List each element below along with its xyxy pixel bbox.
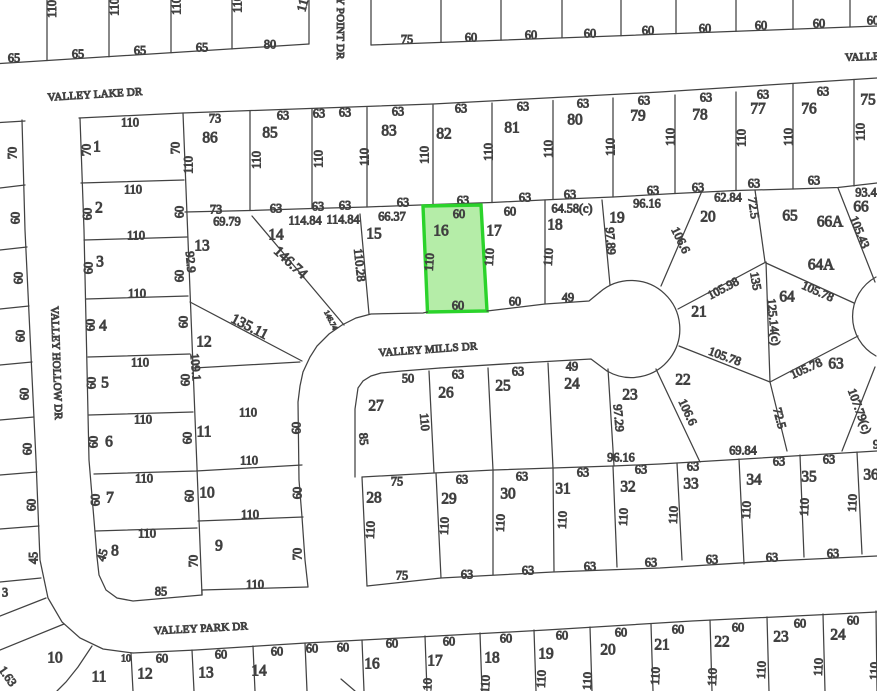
svg-text:60: 60 <box>176 316 190 328</box>
svg-text:63: 63 <box>339 198 351 212</box>
svg-text:5: 5 <box>101 374 109 391</box>
svg-text:97.89: 97.89 <box>603 227 619 255</box>
svg-text:75: 75 <box>391 474 403 488</box>
svg-text:73: 73 <box>209 111 221 125</box>
svg-text:110: 110 <box>482 248 497 267</box>
svg-text:60: 60 <box>867 13 877 27</box>
svg-text:63: 63 <box>455 101 467 115</box>
svg-text:110: 110 <box>705 668 720 687</box>
svg-text:60: 60 <box>500 631 512 645</box>
svg-text:60: 60 <box>182 490 196 502</box>
svg-text:110: 110 <box>128 286 146 300</box>
svg-text:114.84: 114.84 <box>326 212 359 226</box>
svg-text:69.84: 69.84 <box>729 443 756 457</box>
svg-text:110: 110 <box>181 156 195 174</box>
svg-text:34: 34 <box>746 471 762 488</box>
svg-text:92.9: 92.9 <box>183 251 199 273</box>
svg-text:3: 3 <box>2 585 8 599</box>
svg-text:82: 82 <box>436 125 451 142</box>
svg-text:36: 36 <box>863 466 877 483</box>
svg-text:14: 14 <box>268 226 284 243</box>
svg-text:110: 110 <box>648 667 663 686</box>
svg-text:60: 60 <box>615 625 627 639</box>
svg-text:110: 110 <box>734 129 748 147</box>
svg-text:64: 64 <box>779 288 795 305</box>
svg-text:78: 78 <box>692 106 708 123</box>
svg-text:17: 17 <box>486 222 502 239</box>
svg-text:21: 21 <box>691 303 706 320</box>
svg-text:4: 4 <box>99 317 107 334</box>
svg-text:60: 60 <box>215 647 227 661</box>
svg-text:60: 60 <box>584 26 596 40</box>
svg-text:24: 24 <box>830 626 846 643</box>
svg-text:63: 63 <box>456 472 468 486</box>
svg-text:26: 26 <box>438 384 454 401</box>
svg-text:32: 32 <box>620 478 635 495</box>
svg-text:77: 77 <box>750 100 766 117</box>
svg-text:60: 60 <box>525 28 537 42</box>
svg-text:63: 63 <box>516 469 528 483</box>
svg-text:110: 110 <box>138 526 156 540</box>
svg-text:63: 63 <box>757 87 769 101</box>
svg-text:60: 60 <box>813 16 825 30</box>
svg-text:63: 63 <box>577 96 589 110</box>
svg-text:10: 10 <box>121 654 131 665</box>
svg-text:72.5: 72.5 <box>745 197 762 220</box>
svg-text:110: 110 <box>127 228 145 242</box>
svg-text:31: 31 <box>555 480 570 497</box>
svg-text:110: 110 <box>739 501 754 520</box>
svg-text:110: 110 <box>603 138 617 156</box>
svg-text:63: 63 <box>392 104 404 118</box>
svg-text:63: 63 <box>519 190 531 204</box>
svg-text:110: 110 <box>422 253 437 272</box>
svg-text:19: 19 <box>538 645 554 662</box>
svg-text:60: 60 <box>88 494 102 506</box>
svg-text:110: 110 <box>124 182 142 196</box>
svg-text:63: 63 <box>766 550 778 564</box>
svg-text:63: 63 <box>270 201 282 215</box>
svg-text:14: 14 <box>251 662 267 679</box>
svg-text:33: 33 <box>683 475 699 492</box>
svg-text:60: 60 <box>81 262 95 274</box>
svg-text:35: 35 <box>801 468 817 485</box>
svg-text:60: 60 <box>847 613 859 627</box>
svg-text:45: 45 <box>26 552 40 564</box>
svg-text:8: 8 <box>111 542 119 559</box>
svg-text:110: 110 <box>241 507 259 521</box>
svg-text:85: 85 <box>155 584 167 598</box>
svg-text:50: 50 <box>402 371 414 385</box>
svg-text:63: 63 <box>808 173 820 187</box>
svg-text:60: 60 <box>337 640 349 654</box>
svg-text:60: 60 <box>443 634 455 648</box>
svg-text:63: 63 <box>517 99 529 113</box>
svg-text:63: 63 <box>577 465 589 479</box>
svg-text:93: 93 <box>873 437 877 451</box>
svg-text:83: 83 <box>381 122 397 139</box>
svg-text:16: 16 <box>364 655 380 672</box>
svg-text:60: 60 <box>453 207 465 221</box>
svg-text:64A: 64A <box>808 256 834 273</box>
svg-text:60: 60 <box>556 628 568 642</box>
svg-text:93.4: 93.4 <box>855 185 876 199</box>
svg-text:110: 110 <box>240 453 258 467</box>
svg-text:3: 3 <box>96 253 104 270</box>
svg-text:15: 15 <box>366 225 382 242</box>
svg-text:110: 110 <box>311 150 325 168</box>
svg-text:22: 22 <box>714 633 729 650</box>
svg-text:114.84: 114.84 <box>288 213 321 227</box>
svg-text:1: 1 <box>93 138 101 155</box>
svg-text:60: 60 <box>672 622 684 636</box>
svg-text:110: 110 <box>363 521 378 540</box>
svg-text:60: 60 <box>386 636 398 650</box>
svg-text:63: 63 <box>564 187 576 201</box>
svg-text:97.29: 97.29 <box>611 404 627 433</box>
svg-text:75: 75 <box>860 91 876 108</box>
svg-text:18: 18 <box>547 216 563 233</box>
svg-text:16: 16 <box>433 222 449 239</box>
svg-text:60: 60 <box>642 23 654 37</box>
svg-text:60: 60 <box>755 18 767 32</box>
svg-text:110: 110 <box>417 413 433 432</box>
svg-text:75: 75 <box>401 32 413 46</box>
svg-text:63: 63 <box>748 176 760 190</box>
svg-text:2: 2 <box>95 199 103 216</box>
svg-text:80: 80 <box>264 37 276 51</box>
svg-text:60: 60 <box>8 212 22 224</box>
svg-text:60: 60 <box>13 330 27 342</box>
svg-text:110: 110 <box>121 115 139 129</box>
svg-text:63: 63 <box>647 183 659 197</box>
svg-text:63: 63 <box>700 90 712 104</box>
svg-text:22: 22 <box>675 371 690 388</box>
svg-text:63: 63 <box>339 105 351 119</box>
svg-text:VALLEY: VALLEY <box>845 50 877 63</box>
svg-text:79: 79 <box>630 107 646 124</box>
svg-text:60: 60 <box>465 30 477 44</box>
svg-text:63: 63 <box>817 84 829 98</box>
svg-text:60: 60 <box>172 270 186 282</box>
svg-text:12: 12 <box>137 665 152 682</box>
svg-text:110: 110 <box>853 123 867 141</box>
svg-text:110: 110 <box>666 506 681 525</box>
svg-text:60: 60 <box>156 651 168 665</box>
svg-text:110: 110 <box>420 678 435 691</box>
svg-text:110: 110 <box>45 0 59 18</box>
svg-text:110: 110 <box>663 128 677 146</box>
svg-text:69.79: 69.79 <box>213 214 240 228</box>
svg-text:12: 12 <box>196 333 211 350</box>
svg-text:60: 60 <box>172 206 186 218</box>
svg-text:21: 21 <box>654 636 669 653</box>
svg-text:60: 60 <box>452 298 464 312</box>
svg-text:62.84: 62.84 <box>714 190 741 204</box>
svg-text:66: 66 <box>853 198 869 215</box>
svg-text:110: 110 <box>555 511 570 530</box>
svg-text:29: 29 <box>441 490 457 507</box>
svg-text:24: 24 <box>564 375 580 392</box>
svg-text:65: 65 <box>8 51 20 65</box>
svg-text:63: 63 <box>312 199 324 213</box>
svg-text:60: 60 <box>20 443 34 455</box>
svg-text:110: 110 <box>107 0 121 16</box>
svg-text:80: 80 <box>567 111 583 128</box>
svg-text:25: 25 <box>495 377 511 394</box>
svg-text:65: 65 <box>782 207 798 224</box>
svg-text:63: 63 <box>635 462 647 476</box>
svg-text:110: 110 <box>169 0 183 15</box>
svg-text:110: 110 <box>357 148 371 166</box>
svg-text:96.16: 96.16 <box>633 196 660 210</box>
svg-text:66A: 66A <box>817 213 843 230</box>
svg-text:109.1: 109.1 <box>188 353 204 382</box>
svg-text:63: 63 <box>692 180 704 194</box>
svg-text:70: 70 <box>290 548 304 560</box>
svg-text:63: 63 <box>277 108 289 122</box>
svg-text:70: 70 <box>168 142 182 154</box>
svg-text:18: 18 <box>484 649 500 666</box>
svg-text:110: 110 <box>867 662 877 681</box>
svg-text:60: 60 <box>306 641 318 655</box>
svg-text:110: 110 <box>754 661 769 680</box>
svg-text:7: 7 <box>106 489 114 506</box>
svg-text:66.37: 66.37 <box>378 209 405 223</box>
svg-text:110: 110 <box>541 140 555 158</box>
svg-text:17: 17 <box>427 652 443 669</box>
svg-text:23: 23 <box>773 628 789 645</box>
svg-text:10: 10 <box>199 484 215 501</box>
svg-text:110: 110 <box>131 355 149 369</box>
svg-text:110: 110 <box>478 675 493 691</box>
svg-text:65: 65 <box>134 43 146 57</box>
svg-text:63: 63 <box>638 93 650 107</box>
svg-text:60: 60 <box>11 272 25 284</box>
svg-text:60: 60 <box>290 487 304 499</box>
svg-text:60: 60 <box>504 204 516 218</box>
svg-text:75: 75 <box>396 568 408 582</box>
svg-text:63: 63 <box>313 106 325 120</box>
svg-text:110: 110 <box>534 670 549 689</box>
svg-text:110: 110 <box>616 508 631 527</box>
svg-text:65: 65 <box>72 47 84 61</box>
svg-text:60: 60 <box>509 294 521 308</box>
svg-text:63: 63 <box>645 555 657 569</box>
svg-text:110: 110 <box>246 577 264 591</box>
svg-text:9: 9 <box>215 537 223 554</box>
svg-text:60: 60 <box>180 432 194 444</box>
svg-text:63: 63 <box>452 367 464 381</box>
svg-text:VALLEY POINT DR: VALLEY POINT DR <box>334 0 346 60</box>
svg-text:86: 86 <box>202 129 218 146</box>
svg-text:6: 6 <box>105 433 113 450</box>
svg-text:110: 110 <box>249 151 263 169</box>
svg-text:70: 70 <box>79 144 93 156</box>
svg-text:63: 63 <box>522 563 534 577</box>
svg-text:60: 60 <box>794 616 806 630</box>
svg-text:110: 110 <box>781 128 795 146</box>
svg-text:110: 110 <box>481 143 495 161</box>
svg-text:96.16: 96.16 <box>607 450 634 464</box>
svg-text:63: 63 <box>584 559 596 573</box>
svg-text:76: 76 <box>801 100 817 117</box>
svg-text:110: 110 <box>417 146 431 164</box>
svg-text:63: 63 <box>828 355 844 372</box>
svg-text:110: 110 <box>811 658 826 677</box>
svg-text:60: 60 <box>24 499 38 511</box>
svg-text:110: 110 <box>845 494 860 513</box>
svg-text:70: 70 <box>186 555 200 567</box>
svg-text:110: 110 <box>541 248 556 267</box>
svg-text:60: 60 <box>83 319 97 331</box>
svg-text:11: 11 <box>92 668 107 685</box>
svg-text:65: 65 <box>196 40 208 54</box>
svg-text:110: 110 <box>797 498 812 517</box>
svg-text:60: 60 <box>271 644 283 658</box>
svg-text:10: 10 <box>47 649 63 666</box>
svg-text:85: 85 <box>262 124 278 141</box>
svg-text:64.58(c): 64.58(c) <box>552 201 593 215</box>
svg-text:63: 63 <box>823 452 835 466</box>
svg-text:63: 63 <box>827 546 839 560</box>
svg-text:60: 60 <box>289 422 303 434</box>
svg-text:23: 23 <box>622 386 638 403</box>
svg-text:63: 63 <box>706 552 718 566</box>
svg-text:110: 110 <box>493 514 508 533</box>
svg-text:20: 20 <box>700 208 716 225</box>
svg-text:28: 28 <box>366 489 382 506</box>
svg-text:110: 110 <box>239 405 257 419</box>
svg-text:49: 49 <box>566 359 578 373</box>
svg-text:70: 70 <box>5 147 19 159</box>
svg-text:60: 60 <box>17 388 31 400</box>
svg-text:85: 85 <box>356 432 371 445</box>
svg-text:13: 13 <box>198 664 214 681</box>
svg-text:110: 110 <box>437 517 452 536</box>
svg-text:60: 60 <box>86 436 100 448</box>
svg-text:60: 60 <box>84 377 98 389</box>
svg-text:30: 30 <box>500 485 516 502</box>
svg-text:19: 19 <box>609 209 625 226</box>
svg-text:110: 110 <box>134 412 152 426</box>
svg-text:11: 11 <box>197 423 212 440</box>
svg-text:63: 63 <box>461 567 473 581</box>
svg-text:63: 63 <box>397 195 409 209</box>
svg-text:60: 60 <box>732 620 744 634</box>
svg-text:60: 60 <box>80 208 94 220</box>
svg-text:20: 20 <box>600 641 616 658</box>
svg-text:27: 27 <box>368 397 384 414</box>
svg-text:110: 110 <box>135 471 153 485</box>
svg-text:60: 60 <box>699 21 711 35</box>
svg-text:110: 110 <box>230 0 244 13</box>
svg-text:110: 110 <box>580 672 595 691</box>
svg-text:81: 81 <box>504 119 519 136</box>
svg-text:63: 63 <box>773 454 785 468</box>
svg-text:63: 63 <box>512 364 524 378</box>
svg-text:63: 63 <box>687 459 699 473</box>
